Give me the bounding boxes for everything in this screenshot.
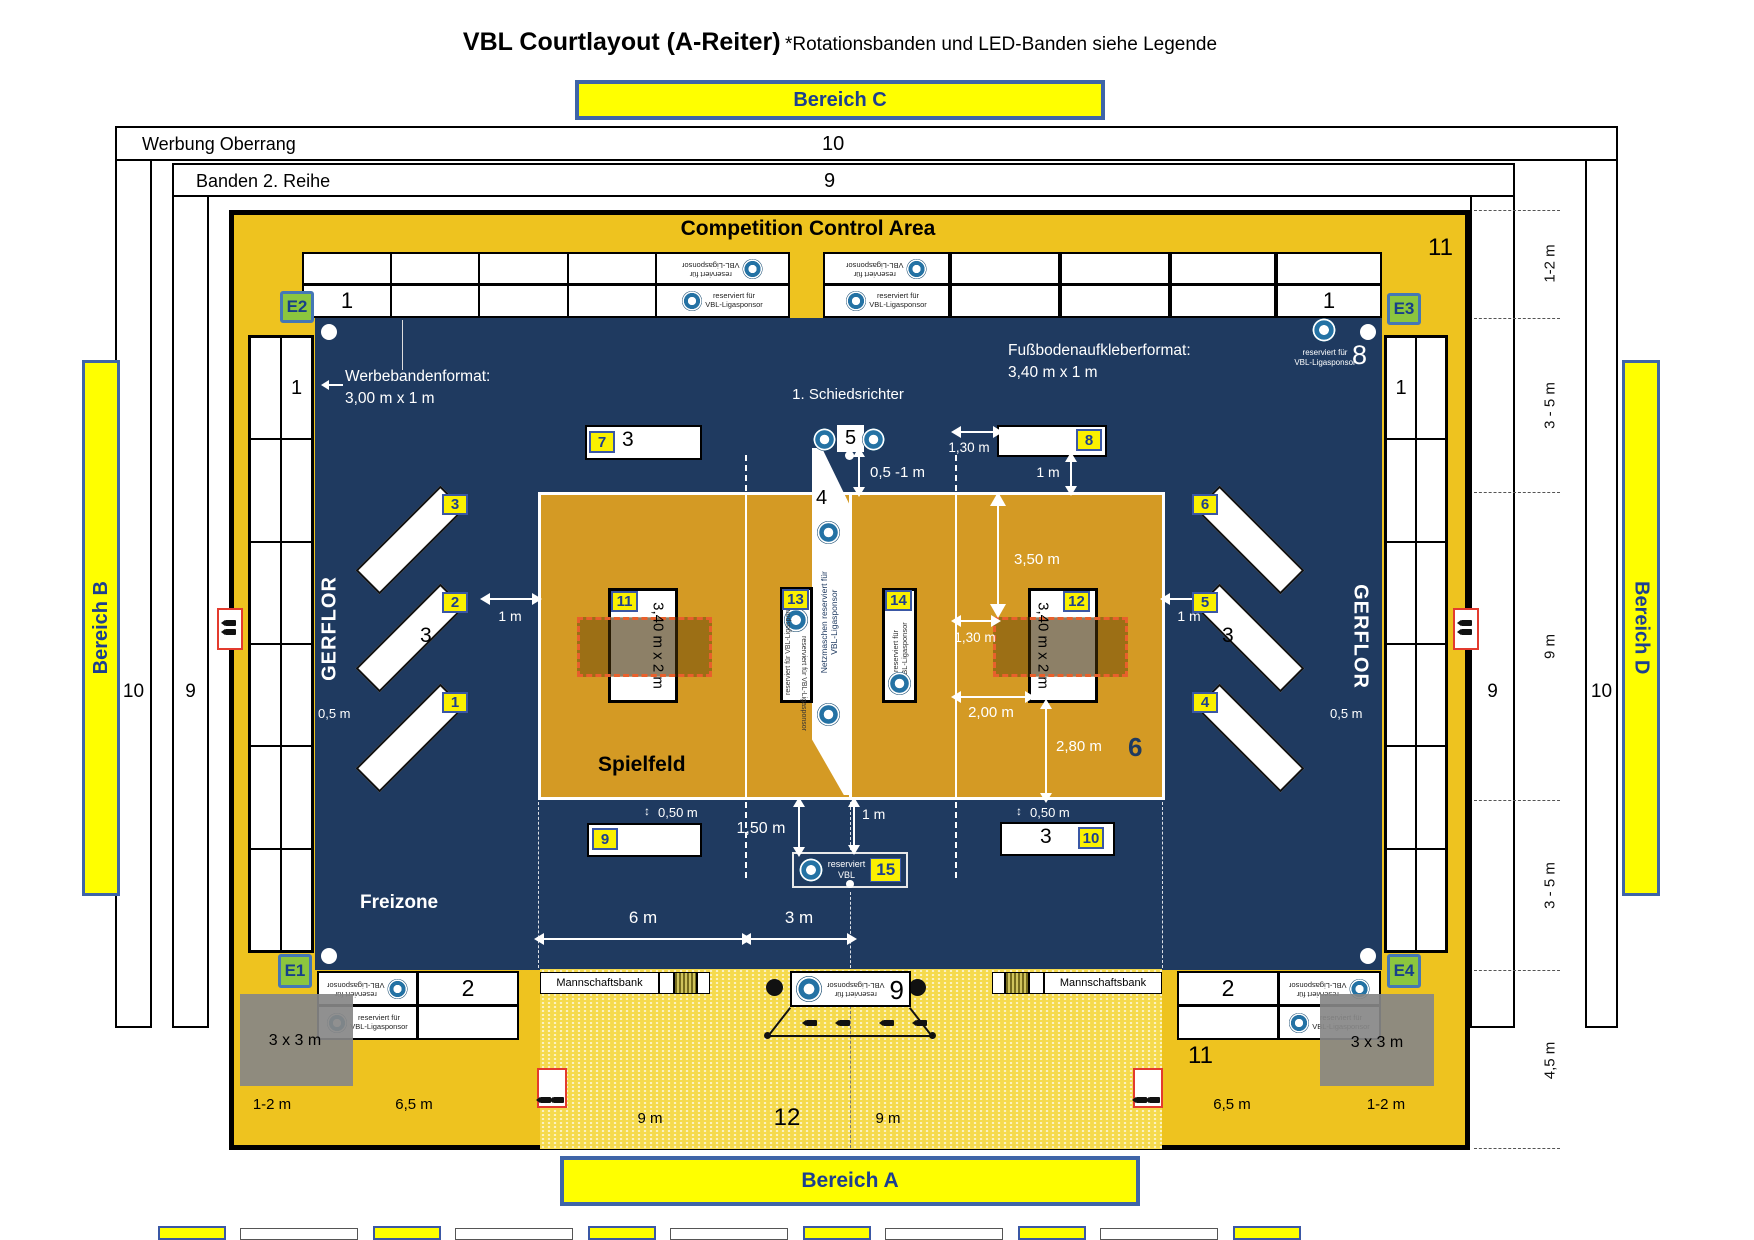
position-badge-10: 10 — [1078, 827, 1104, 849]
legend-box — [240, 1228, 358, 1240]
banner-cell — [1416, 542, 1446, 644]
banner-cell — [281, 849, 312, 951]
dashed-line — [745, 455, 747, 491]
banner-cell — [1060, 252, 1170, 285]
camera-icon — [1461, 620, 1472, 626]
camera-icon — [839, 1020, 850, 1026]
side-banner-column-left: 1 — [248, 335, 314, 953]
camera-icon — [1461, 629, 1472, 635]
dim-0-50m-left: 0,50 m — [658, 805, 698, 820]
vbl-reserved-text: reserviertVBL — [828, 859, 866, 881]
dim-arrow-6m — [543, 938, 743, 940]
exit-badge-e1: E1 — [278, 954, 312, 988]
referee-stand-number: 4 — [816, 487, 827, 510]
vbl-logo-icon — [682, 291, 702, 311]
dim-1m-left: 1 m — [487, 608, 533, 624]
vbl-logo-icon — [862, 428, 885, 451]
werbung-oberrang-label: Werbung Oberrang — [142, 134, 296, 155]
banden-2-strip: Banden 2. Reihe 9 — [172, 163, 1515, 197]
spielfeld-label: Spielfeld — [598, 753, 686, 777]
banner-cell — [950, 252, 1060, 285]
dim-left-0-5m: 0,5 m — [318, 706, 351, 721]
mannschaftsbank-left: Mannschaftsbank — [540, 972, 659, 994]
vbl-logo-icon — [796, 976, 822, 1002]
dim-arrow-2-00m — [960, 696, 1026, 698]
banner-cell — [1416, 644, 1446, 746]
dim-right-3-5m-top: 3 - 5 m — [1542, 369, 1559, 443]
bereich-a-label: Bereich A — [801, 1169, 898, 1193]
attack-line-left — [745, 492, 747, 800]
legend-box — [885, 1228, 1003, 1240]
werbung-right-column: 10 — [1585, 159, 1618, 1028]
vbl-logo-icon — [1289, 1013, 1309, 1033]
camera-icon — [806, 1020, 817, 1026]
fussboden-format-line2: 3,40 m x 1 m — [1008, 364, 1098, 382]
bench-cell — [697, 972, 710, 994]
legend-box — [670, 1228, 788, 1240]
legend-box — [455, 1228, 573, 1240]
banner-cell — [281, 644, 312, 746]
banner-cell — [281, 439, 312, 541]
dim-6m: 6 m — [609, 908, 677, 928]
camera-icon — [883, 1020, 894, 1026]
vbl-logo-icon — [817, 521, 840, 544]
banner-cell — [1386, 439, 1416, 541]
gerflor-label-right: GERFLOR — [1349, 557, 1372, 717]
camera-icon — [1149, 1097, 1160, 1103]
dim-3-50m: 3,50 m — [1014, 551, 1060, 568]
dim-1-2m-right: 1-2 m — [1346, 1096, 1426, 1113]
dim-6-5m-left: 6,5 m — [374, 1096, 454, 1113]
dim-right-1-2m: 1-2 m — [1542, 227, 1559, 301]
banner-cell — [250, 439, 281, 541]
position-badge-4: 4 — [1192, 692, 1218, 713]
position-badge-8: 8 — [1076, 429, 1102, 451]
annotation-arrowhead — [316, 380, 329, 390]
bereich-c-label: Bereich C — [793, 89, 886, 112]
banner-cell — [478, 252, 569, 285]
camera-position-bottom-right — [1133, 1068, 1163, 1108]
corner-marker — [1360, 324, 1376, 340]
dim-arrow-1m-left — [489, 598, 533, 600]
banner-cell-1: 1 — [1276, 284, 1382, 318]
zone-11-bottom: 11 — [1188, 1042, 1213, 1070]
dashed-line — [955, 802, 957, 878]
mannschaftsbank-right: Mannschaftsbank — [1044, 972, 1162, 994]
vbl-logo-icon — [817, 703, 840, 726]
banner-cell — [1386, 542, 1416, 644]
bereich-a-banner: Bereich A — [560, 1156, 1140, 1206]
werbung-oberrang-strip: Werbung Oberrang 10 — [115, 126, 1618, 161]
vbl-logo-icon — [846, 291, 866, 311]
banner-cell — [250, 746, 281, 848]
banner-cell — [250, 644, 281, 746]
zone-8-number: 8 — [1352, 340, 1367, 371]
legend-chip — [1233, 1226, 1301, 1240]
dim-1-30m-top: 1,30 m — [938, 440, 1000, 455]
title-subtitle: *Rotationsbanden und LED-Banden siehe Le… — [785, 34, 1217, 55]
sticker-area-dashed-left — [577, 617, 712, 677]
banner-cell — [1170, 284, 1276, 318]
position-badge-13: 13 — [782, 589, 809, 610]
banner-cell-2: 2 — [417, 971, 519, 1006]
gray-zone-label: 3 x 3 m — [250, 1032, 340, 1050]
sideline-extension-right — [1162, 802, 1163, 968]
banner-cell — [1416, 439, 1446, 541]
position-badge-5: 5 — [1192, 592, 1218, 613]
press-zone-line — [768, 1035, 932, 1037]
scorer-table-box: 6 reserviert fürVBL-Ligasponsor — [790, 971, 911, 1007]
bench-cell-striped — [674, 972, 697, 994]
dashed-line — [745, 802, 747, 878]
dim-1-30m-court: 1,30 m — [946, 630, 1004, 645]
vbl-logo-icon — [1312, 318, 1336, 342]
sponsor-cell-rotated: reserviert fürVBL-Ligasponsor — [655, 252, 790, 285]
marker-dot — [845, 451, 854, 460]
dim-1m-banner8: 1 m — [1030, 464, 1066, 480]
court-center-line — [849, 492, 852, 800]
camera-icon — [225, 629, 236, 635]
vbl-logo-icon — [388, 979, 408, 999]
banner-cell — [1386, 746, 1416, 848]
position-badge-15: 15 — [870, 858, 901, 882]
pole-marker — [909, 979, 926, 996]
sticker-size-left: 3,40 m x 2 m — [650, 591, 667, 701]
title-main: VBL Courtlayout (A-Reiter) — [463, 28, 781, 56]
banner-cell — [281, 746, 312, 848]
banden-right-count: 9 — [1472, 681, 1513, 703]
page-title: VBL Courtlayout (A-Reiter) *Rotationsban… — [0, 28, 1680, 57]
tick-line — [1474, 492, 1560, 493]
vbl-logo-icon — [888, 672, 911, 695]
bereich-b-banner: Bereich B — [82, 360, 120, 896]
werbeband-format-line1: Werbebandenformat: — [345, 368, 490, 386]
annotation-line — [402, 320, 403, 370]
banner-cell — [1060, 284, 1170, 318]
bereich-b-label: Bereich B — [90, 581, 113, 674]
exit-badge-e3: E3 — [1387, 293, 1421, 325]
banner-cell — [567, 284, 657, 318]
banner-cell — [417, 1005, 519, 1040]
dim-1-50m: 1,50 m — [730, 820, 792, 838]
tick-glyph: ↕ — [644, 804, 650, 818]
werbung-left-count: 10 — [117, 681, 150, 703]
dim-right-3-5m-bottom: 3 - 5 m — [1542, 849, 1559, 923]
sticker-area-dashed-right — [993, 617, 1128, 677]
banner-cell — [1416, 746, 1446, 848]
diag-count-right: 3 — [1222, 624, 1234, 648]
bench-cell — [1029, 972, 1044, 994]
zone-12-number: 12 — [763, 1104, 811, 1132]
dashed-line — [955, 455, 957, 491]
dim-arrow-2-80m — [1045, 708, 1047, 794]
camera-position-left — [217, 608, 243, 650]
corner-marker — [321, 948, 337, 964]
gerflor-label-left: GERFLOR — [319, 549, 342, 709]
dim-6-5m-right: 6,5 m — [1192, 1096, 1272, 1113]
exit-badge-e2: E2 — [280, 291, 314, 323]
exit-badge-e4: E4 — [1387, 954, 1421, 988]
bereich-d-banner: Bereich D — [1622, 360, 1660, 896]
bench-cell-striped — [1005, 972, 1029, 994]
vbl-logo-icon — [907, 259, 927, 279]
werbeband-format-line2: 3,00 m x 1 m — [345, 390, 435, 408]
werbung-oberrang-count: 10 — [822, 133, 844, 156]
dim-0-50m-right: 0,50 m — [1030, 805, 1070, 820]
freizone-label: Freizone — [360, 892, 438, 914]
bereich-d-label: Bereich D — [1630, 581, 1653, 674]
camera-position-right — [1453, 608, 1479, 650]
dim-arrow-1-50m — [798, 806, 800, 848]
center-extension-line — [850, 892, 851, 968]
dim-arrow-3-50m — [997, 505, 999, 605]
position-badge-9: 9 — [592, 828, 618, 850]
camera-position-bottom-left — [537, 1068, 567, 1108]
tick-line — [1474, 210, 1560, 211]
schiedsrichter-label: 1. Schiedsrichter — [748, 386, 948, 403]
banner-cell-2: 2 — [1177, 971, 1279, 1006]
banner-cell — [1416, 849, 1446, 951]
sponsor-cell: reserviert fürVBL-Ligasponsor — [655, 284, 790, 318]
legend-chip — [158, 1226, 226, 1240]
tick-line — [1474, 318, 1560, 319]
dim-9m-left: 9 m — [622, 1110, 678, 1127]
tick-line — [1474, 800, 1560, 801]
dim-right-9m: 9 m — [1542, 610, 1559, 684]
banner-cell-1: 1 — [302, 284, 392, 318]
zone-6-number: 6 — [1128, 732, 1142, 763]
dim-arrow-1m-banner8 — [1070, 461, 1072, 487]
banner-cell — [1416, 337, 1446, 439]
fussboden-format-line1: Fußbodenaufkleberformat: — [1008, 342, 1191, 360]
tick-line — [1474, 1148, 1560, 1149]
center-extension-line — [850, 1006, 851, 1148]
banner-cell — [1177, 1005, 1279, 1040]
dim-right-0-5m: 0,5 m — [1330, 706, 1363, 721]
marker-dot — [846, 880, 854, 888]
panel13-text-down: reserviert für VBL-Ligasponsor — [800, 636, 807, 731]
banner-cell — [390, 252, 480, 285]
banner-cell — [302, 252, 392, 285]
panel13-text-up: reserviert für VBL-Ligasponsor — [785, 600, 792, 695]
dim-arrow-1-30m-court — [960, 620, 992, 622]
legend-chip — [1018, 1226, 1086, 1240]
legend-box — [1100, 1228, 1218, 1240]
banner-cell — [1386, 644, 1416, 746]
banden-2-count: 9 — [824, 170, 835, 193]
position-badge-1: 1 — [442, 692, 468, 713]
dim-arrow-1m-net — [853, 806, 855, 846]
bench-cell — [659, 972, 674, 994]
dim-2-80m: 2,80 m — [1056, 738, 1102, 755]
werbung-right-count: 10 — [1587, 681, 1616, 703]
dim-0-5-1m: 0,5 -1 m — [870, 464, 925, 481]
scorer-table-number: 6 — [890, 974, 904, 1005]
dim-1m-net: 1 m — [862, 806, 885, 822]
banden-left-count: 9 — [174, 681, 207, 703]
banner-cell — [390, 284, 480, 318]
banden-2-label: Banden 2. Reihe — [196, 171, 330, 192]
bereich-c-banner: Bereich C — [575, 80, 1105, 120]
pole-marker — [766, 979, 783, 996]
dim-3m: 3 m — [770, 908, 828, 928]
gray-zone-3x3-left: 3 x 3 m — [240, 994, 353, 1086]
camera-icon — [225, 620, 236, 626]
banner-10-count: 3 — [1040, 825, 1052, 849]
corner-marker — [1360, 948, 1376, 964]
dim-arrow-1-30m-top — [960, 431, 994, 433]
position-badge-2: 2 — [442, 592, 468, 613]
center-extension-line — [850, 802, 851, 850]
legend-chip — [803, 1226, 871, 1240]
diag-count-left: 3 — [420, 624, 432, 648]
banner-cell — [1276, 252, 1382, 285]
legend-chip — [588, 1226, 656, 1240]
banner-cell-1: 1 — [1386, 337, 1416, 439]
werbung-left-column: 10 — [115, 159, 152, 1028]
dim-right-4-5m: 4,5 m — [1542, 1024, 1559, 1098]
dim-2-00m: 2,00 m — [958, 704, 1024, 721]
banner-cell — [1170, 252, 1276, 285]
banner-cell — [478, 284, 569, 318]
sponsor-cell-rotated: reserviert fürVBL-Ligasponsor — [823, 252, 950, 285]
sticker-size-right: 3,40 m x 2 m — [1035, 591, 1052, 701]
banner-cell — [250, 542, 281, 644]
vbl-logo-icon — [813, 428, 836, 451]
banner-cell — [950, 284, 1060, 318]
net-sponsor-text: Netzmaschen reserviert fürVBL-Ligasponso… — [819, 547, 839, 697]
position-badge-11: 11 — [611, 591, 638, 612]
dim-9m-right: 9 m — [860, 1110, 916, 1127]
side-banner-column-right: 1 — [1384, 335, 1448, 953]
position-badge-7: 7 — [589, 431, 615, 453]
position-badge-6: 6 — [1192, 494, 1218, 515]
banden-left-column: 9 — [172, 195, 209, 1028]
corner-marker — [321, 324, 337, 340]
banner-cell — [281, 542, 312, 644]
vbl-logo-icon — [799, 858, 823, 882]
banner-cell — [1386, 849, 1416, 951]
vbl-logo-icon — [743, 259, 763, 279]
banner-cell — [250, 337, 281, 439]
dim-arrow-3m — [750, 938, 848, 940]
banner-cell — [567, 252, 657, 285]
position-badge-14: 14 — [885, 590, 912, 611]
dim-1-2m-left: 1-2 m — [232, 1096, 312, 1113]
banner-cell — [250, 849, 281, 951]
banner-cell-1: 1 — [281, 337, 312, 439]
attack-line-right — [955, 492, 957, 800]
gray-zone-3x3-right: 3 x 3 m — [1320, 994, 1434, 1086]
control-area-label: Competition Control Area — [648, 217, 968, 241]
banner-7-count: 3 — [622, 428, 634, 452]
tick-line — [1474, 970, 1560, 971]
legend-chip — [373, 1226, 441, 1240]
gray-zone-label: 3 x 3 m — [1332, 1034, 1422, 1052]
position-badge-3: 3 — [442, 494, 468, 515]
sponsor-cell: reserviert fürVBL-Ligasponsor — [823, 284, 950, 318]
zone-11-top: 11 — [1428, 234, 1453, 262]
dim-arrow-0-5-1m — [858, 456, 860, 488]
camera-icon — [553, 1097, 564, 1103]
tick-glyph: ↕ — [1016, 804, 1022, 818]
bench-cell — [992, 972, 1005, 994]
position-badge-12: 12 — [1063, 591, 1090, 612]
court-layout-diagram: VBL Courtlayout (A-Reiter) *Rotationsban… — [0, 0, 1754, 1240]
